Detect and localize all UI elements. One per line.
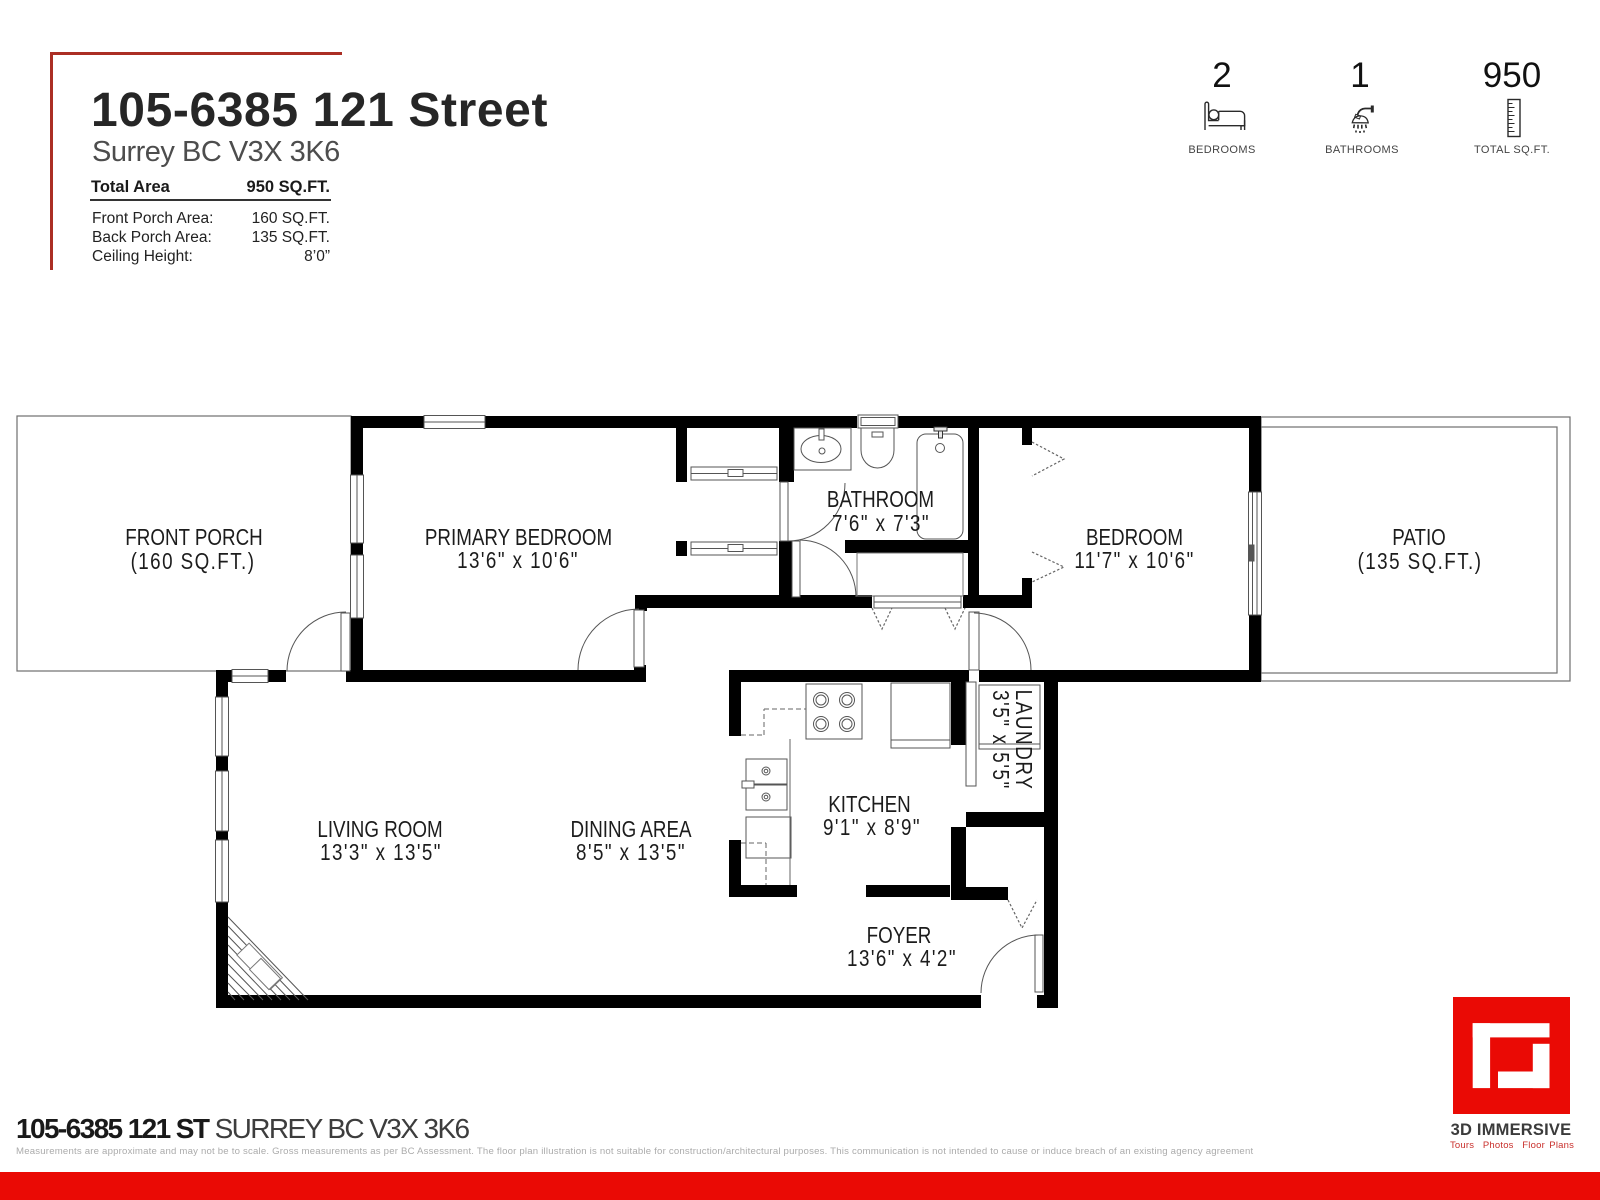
svg-text:8'5" x 13'5": 8'5" x 13'5" xyxy=(576,839,686,866)
svg-text:3'5" x 5'5": 3'5" x 5'5" xyxy=(987,690,1014,790)
svg-text:BATHROOM: BATHROOM xyxy=(827,486,934,513)
svg-text:FRONT PORCH: FRONT PORCH xyxy=(125,524,262,551)
svg-text:PATIO: PATIO xyxy=(1392,524,1446,551)
svg-text:7'6" x 7'3": 7'6" x 7'3" xyxy=(832,510,930,537)
svg-text:Tours Photos Floor Plans: Tours Photos Floor Plans xyxy=(1450,1140,1574,1151)
svg-text:(135 SQ.FT.): (135 SQ.FT.) xyxy=(1358,548,1483,575)
svg-text:3D IMMERSIVE: 3D IMMERSIVE xyxy=(1451,1121,1572,1139)
svg-text:(160 SQ.FT.): (160 SQ.FT.) xyxy=(131,548,256,575)
svg-text:13'6" x 4'2": 13'6" x 4'2" xyxy=(847,945,957,972)
svg-text:13'3" x 13'5": 13'3" x 13'5" xyxy=(320,839,442,866)
svg-text:11'7" x 10'6": 11'7" x 10'6" xyxy=(1074,547,1194,574)
svg-text:13'6" x 10'6": 13'6" x 10'6" xyxy=(457,547,579,574)
svg-text:9'1" x 8'9": 9'1" x 8'9" xyxy=(823,814,921,841)
